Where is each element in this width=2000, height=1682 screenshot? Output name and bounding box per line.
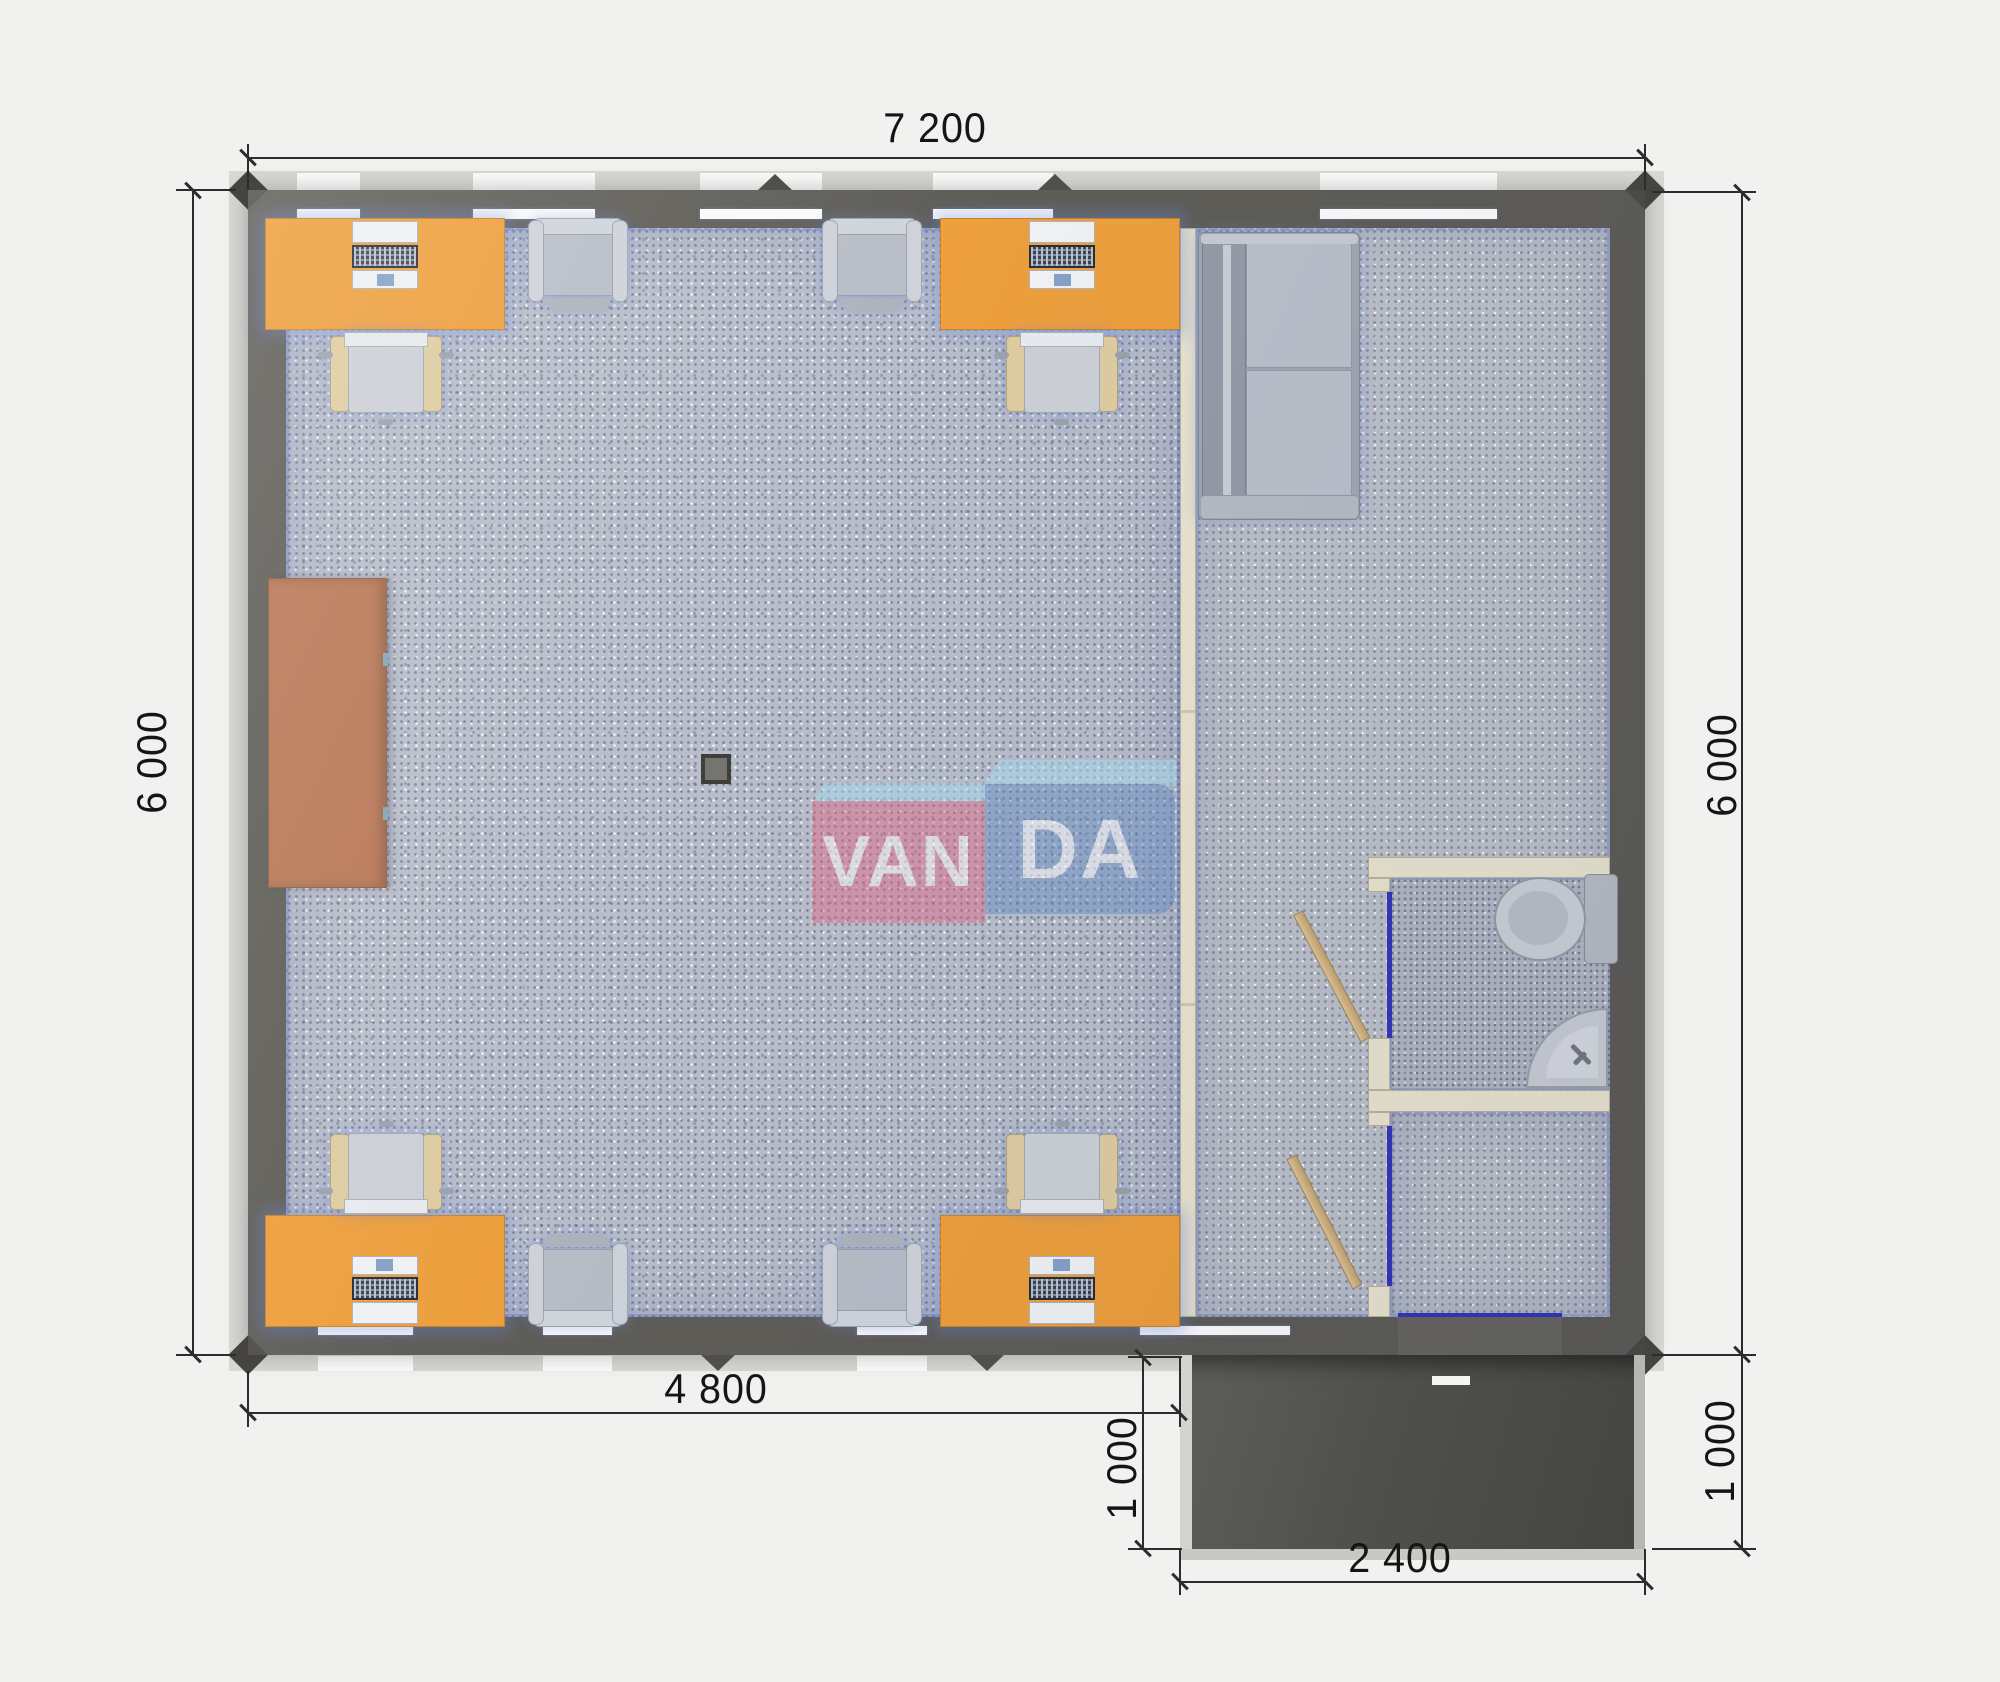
chair-armrest [422, 336, 442, 412]
toilet [1494, 874, 1618, 964]
window-sill [543, 1356, 612, 1371]
computer-monitor [352, 1302, 418, 1324]
computer-base [1029, 1256, 1095, 1275]
window-sill [857, 1356, 927, 1371]
armchair-armrest [906, 220, 922, 302]
armchair-seat [837, 234, 907, 296]
window-sill [297, 173, 360, 190]
door-handle [1432, 1376, 1470, 1385]
sofa-armrest [1201, 495, 1358, 518]
bathroom-wall-left-upper [1368, 878, 1390, 892]
sofa-armrest [1201, 234, 1358, 244]
chair-caster [318, 1188, 333, 1194]
window [857, 1326, 927, 1335]
dim-ext [247, 144, 249, 190]
chair-caster [1054, 419, 1069, 425]
module-joint-marker [758, 174, 792, 190]
computer-base [1029, 270, 1095, 289]
computer-base [352, 270, 418, 289]
logo-block-blue: DA [985, 784, 1175, 914]
toilet-tank [1584, 874, 1618, 964]
window-sill [1320, 173, 1497, 190]
armchair-armrest [612, 1243, 628, 1325]
dim-ext [1128, 1356, 1182, 1358]
chair-caster [439, 352, 454, 358]
chair-armrest [330, 336, 350, 412]
armchair-front-edge [546, 1233, 610, 1247]
armchair-front-edge [840, 298, 904, 312]
roof-eave-right [1645, 171, 1664, 1371]
dim-label-right-height: 6 000 [1698, 713, 1746, 817]
computer-monitor [1029, 1302, 1095, 1324]
window [1140, 1326, 1290, 1335]
chair-caster [318, 352, 333, 358]
partition-seam [1181, 710, 1195, 713]
storage-cabinet [268, 578, 387, 888]
armchair-armrest [822, 220, 838, 302]
dim-ext [176, 1354, 236, 1356]
chair-backrest [1020, 332, 1104, 347]
armchair-backrest [534, 1309, 622, 1327]
chair-caster [439, 1188, 454, 1194]
armchair-armrest [822, 1243, 838, 1325]
chair-backrest [344, 1199, 428, 1214]
dim-ext [1179, 1549, 1181, 1595]
chair-caster [1115, 352, 1130, 358]
logo-text-van: VAN [822, 821, 975, 903]
sofa [1198, 232, 1360, 520]
chair-caster [1115, 1188, 1130, 1194]
porch-step-right-highlight [1634, 1355, 1645, 1549]
office-chair-top-left [330, 332, 442, 416]
bathroom-wall-left-lower [1368, 1038, 1390, 1090]
office-chair-bottom-right [1006, 1130, 1118, 1214]
module-joint-marker [1038, 174, 1072, 190]
computer-monitor [1029, 221, 1095, 243]
armchair-armrest [612, 220, 628, 302]
window-sill [318, 1356, 413, 1371]
window [318, 1326, 413, 1335]
armchair-seat [837, 1249, 907, 1311]
dim-label-porch-width: 2 400 [1348, 1534, 1452, 1582]
logo-roof-right [984, 760, 1176, 786]
chair-caster [378, 419, 393, 425]
dim-ext [1644, 1549, 1646, 1595]
computer-bottom-left [352, 1256, 418, 1324]
vanda-watermark: VAN DA [806, 760, 1176, 928]
armchair-backrest [828, 1309, 916, 1327]
sofa-backrest-highlight [1223, 245, 1231, 501]
cabinet-handle [383, 807, 388, 820]
logo-text-da: DA [1017, 801, 1142, 898]
toilet-bowl [1494, 877, 1586, 961]
cabinet-handle [383, 653, 388, 666]
dim-label-porch-depth-left: 1 000 [1098, 1416, 1146, 1520]
armchair-armrest [906, 1243, 922, 1325]
dim-label-left-height: 6 000 [128, 710, 176, 814]
window [700, 209, 822, 219]
vestibule-floor [1390, 1112, 1610, 1317]
armchair-top-1 [528, 218, 628, 312]
door-frame-bathroom [1387, 892, 1392, 1038]
chair-caster [379, 1121, 394, 1127]
mouse-pad [377, 274, 394, 286]
logo-block-pink: VAN [812, 801, 985, 923]
floor-plan-canvas: VAN DA 7 200 6 000 6 000 1 000 4 800 1 0… [0, 0, 2000, 1682]
dim-label-office-width: 4 800 [664, 1365, 768, 1413]
armchair-bottom-1 [528, 1233, 628, 1327]
sofa-cushion [1246, 370, 1352, 496]
computer-top-left [352, 221, 418, 289]
dim-label-overall-width: 7 200 [883, 104, 987, 152]
dim-ext [1128, 1548, 1182, 1550]
sink-basin [1546, 1026, 1598, 1078]
office-chair-top-right [1006, 332, 1118, 416]
toilet-seat [1508, 891, 1568, 945]
computer-monitor [352, 221, 418, 243]
computer-keyboard [1029, 245, 1095, 268]
computer-top-right [1029, 221, 1095, 289]
vestibule-wall-left-upper [1368, 1112, 1390, 1126]
mouse-pad [1054, 1260, 1071, 1272]
entrance-door [1398, 1317, 1562, 1355]
window-sill [473, 173, 595, 190]
armchair-front-edge [546, 298, 610, 312]
bathroom-wall-bottom [1368, 1090, 1610, 1112]
chair-backrest [1020, 1199, 1104, 1214]
dim-ext [247, 1371, 249, 1427]
window [543, 1326, 612, 1335]
chair-armrest [1006, 336, 1026, 412]
computer-keyboard [352, 1277, 418, 1300]
dim-label-porch-depth-right: 1 000 [1696, 1399, 1744, 1503]
chair-armrest [1098, 336, 1118, 412]
logo-roof-left [812, 783, 992, 803]
entrance-porch [1180, 1355, 1645, 1549]
sofa-cushion [1246, 242, 1352, 368]
mouse-pad [1054, 274, 1071, 286]
armchair-seat [543, 1249, 613, 1311]
floor-service-box [701, 754, 731, 784]
chair-caster [994, 1188, 1009, 1194]
roof-eave-left [229, 171, 248, 1371]
window [1320, 209, 1497, 219]
computer-bottom-right [1029, 1256, 1095, 1324]
armchair-armrest [528, 220, 544, 302]
office-chair-bottom-left [330, 1130, 442, 1214]
dim-line-top [248, 157, 1645, 159]
module-joint-marker [970, 1355, 1004, 1371]
partition-wall [1180, 228, 1196, 1317]
armchair-seat [543, 234, 613, 296]
computer-base [352, 1256, 418, 1275]
armchair-armrest [528, 1243, 544, 1325]
armchair-top-2 [822, 218, 922, 312]
vestibule-wall-left-lower [1368, 1286, 1390, 1317]
dim-line-left [192, 190, 194, 1355]
chair-caster [1055, 1121, 1070, 1127]
mouse-pad [377, 1260, 394, 1272]
computer-keyboard [1029, 1277, 1095, 1300]
window-sill [933, 173, 1053, 190]
partition-seam [1181, 1003, 1195, 1006]
chair-caster [994, 352, 1009, 358]
dim-ext [176, 189, 236, 191]
computer-keyboard [352, 245, 418, 268]
armchair-bottom-2 [822, 1233, 922, 1327]
chair-backrest [344, 332, 428, 347]
armchair-front-edge [840, 1233, 904, 1247]
dim-ext [1644, 144, 1646, 190]
porch-step-left-highlight [1180, 1355, 1192, 1549]
door-frame-vestibule [1387, 1126, 1392, 1286]
